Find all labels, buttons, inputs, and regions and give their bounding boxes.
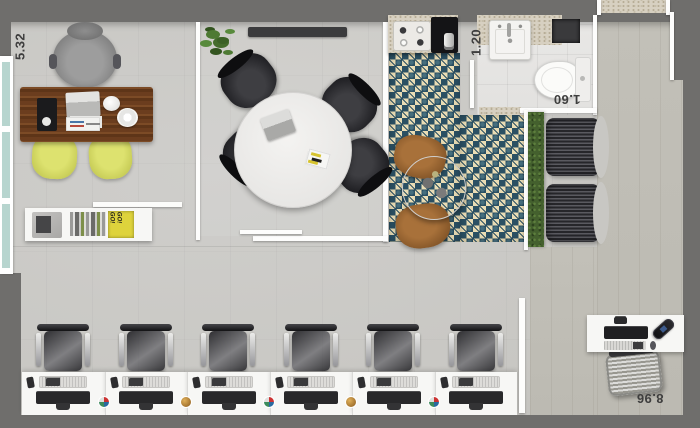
cafe-tile-floor	[460, 115, 527, 242]
desk-accessory	[98, 396, 110, 408]
chair-seat	[457, 331, 495, 371]
window-mullion	[0, 198, 13, 204]
lounge-bench	[546, 184, 600, 242]
printer	[32, 212, 62, 238]
task-chair	[283, 324, 339, 373]
chair-armrest	[168, 333, 173, 366]
monitor	[604, 326, 648, 339]
workstation	[105, 300, 188, 415]
laptop	[65, 91, 100, 118]
coffee-machine	[431, 17, 458, 53]
floor-seam	[10, 246, 390, 247]
documents	[66, 117, 100, 131]
meeting-papers	[305, 148, 330, 169]
workstation-desk	[270, 372, 353, 415]
desk-phone-dock	[37, 98, 57, 131]
desk-phone	[26, 376, 35, 388]
workstation-desk	[22, 372, 105, 415]
desk-phone	[110, 376, 119, 388]
keyboard-keys	[128, 377, 143, 386]
workstation-desk	[352, 372, 435, 415]
desk-phone	[357, 376, 366, 388]
dimension-label-bathroom: 1.60	[542, 93, 592, 106]
meeting-table	[234, 92, 352, 208]
chair-armrest	[449, 333, 454, 366]
partition-wall	[519, 298, 525, 413]
chair-seat	[374, 331, 412, 371]
monitor-stand	[387, 403, 401, 410]
dimension-label-kitchen: 1.20	[470, 15, 483, 71]
chair-armrest	[284, 333, 289, 366]
chair-seat	[127, 331, 165, 371]
chair-back	[367, 324, 419, 331]
monitor-stand	[304, 403, 318, 410]
workstation	[270, 300, 353, 415]
laptop	[260, 109, 296, 142]
desk-phone	[275, 376, 284, 388]
entry-threshold	[601, 0, 666, 13]
wall-left-lower	[0, 273, 21, 415]
chair-armrest	[498, 333, 503, 366]
chair-armrest	[201, 333, 206, 366]
executive-chair	[53, 30, 117, 88]
keyboard-keys	[211, 377, 226, 386]
bathroom-threshold	[479, 107, 521, 115]
wall-left-upper	[0, 22, 11, 58]
chair-seat	[44, 331, 82, 371]
wall-right	[683, 22, 700, 415]
window-mullion	[0, 56, 13, 62]
meeting-room-wall-right	[383, 22, 388, 242]
desk-phone	[440, 376, 449, 388]
chair-armrest	[366, 333, 371, 366]
chair-armrest	[250, 333, 255, 366]
chair-armrest	[333, 333, 338, 366]
book-text: GO! GO!	[108, 211, 121, 225]
monitor-stand	[139, 403, 153, 410]
mouse	[650, 341, 656, 350]
chair-armrest	[415, 333, 420, 366]
keyboard	[604, 341, 646, 350]
desk-accessory	[180, 396, 192, 408]
chair-back	[202, 324, 254, 331]
desk-accessory	[263, 396, 275, 408]
tv-credenza	[248, 27, 347, 37]
window-mullion	[0, 126, 13, 132]
wall-right-upper	[674, 0, 700, 80]
task-chair	[200, 324, 256, 373]
desk-phone	[192, 376, 201, 388]
window-left	[0, 56, 13, 274]
workstation	[22, 300, 105, 415]
reception-desk	[587, 315, 684, 352]
sink	[489, 20, 531, 60]
task-chair	[365, 324, 421, 373]
workstation	[187, 300, 270, 415]
cafe-table	[402, 156, 466, 220]
keyboard	[122, 376, 170, 388]
sideboard: GO! GO!	[25, 208, 152, 241]
window-glass	[2, 56, 10, 274]
meeting-room-sliding-door	[240, 230, 302, 234]
keyboard-keys	[376, 377, 391, 386]
bathroom-mirror-niche	[552, 19, 580, 43]
meeting-room-wall-bottom	[253, 236, 388, 241]
kitchen-counter	[388, 15, 458, 53]
desk-lamp	[103, 96, 120, 111]
workstation-desk	[187, 372, 270, 415]
keyboard	[39, 376, 87, 388]
workstation	[435, 300, 518, 415]
chair-seat	[209, 331, 247, 371]
yellow-books: GO! GO!	[108, 211, 134, 238]
cooktop	[393, 21, 431, 51]
dimension-label-left: 5.32	[14, 19, 27, 75]
chair-armrest	[36, 333, 41, 366]
chair-back	[120, 324, 172, 331]
reception-chair	[605, 349, 663, 396]
keyboard-keys	[45, 377, 60, 386]
chair-back	[450, 324, 502, 331]
monitor-stand	[222, 403, 236, 410]
entry-door-leaf	[670, 12, 674, 80]
dimension-label-bottom: 8.96	[624, 392, 676, 405]
workstation	[352, 300, 435, 415]
lounge-bench	[546, 118, 600, 176]
chair-back	[37, 324, 89, 331]
webcam	[614, 317, 627, 324]
keyboard-keys	[293, 377, 308, 386]
keyboard	[287, 376, 335, 388]
task-chair	[118, 324, 174, 373]
meeting-room-wall-left	[196, 22, 200, 240]
chair-armrest	[119, 333, 124, 366]
chair-seat	[292, 331, 330, 371]
wall-bottom	[0, 415, 700, 428]
office-floor-plan: GO! GO!	[0, 0, 700, 428]
book-stack	[70, 212, 106, 236]
workstation-desk	[435, 372, 518, 415]
keyboard-keys	[458, 377, 473, 386]
plant	[206, 30, 220, 39]
chair-armrest	[85, 333, 90, 366]
workstation-desk	[105, 372, 188, 415]
workstation-row	[22, 300, 517, 415]
window-mullion	[0, 268, 13, 274]
keyboard	[370, 376, 418, 388]
task-chair	[35, 324, 91, 373]
desk-accessory	[345, 396, 357, 408]
desk-phone	[651, 317, 676, 341]
keyboard	[452, 376, 500, 388]
wall-shelf	[93, 202, 182, 207]
bathroom-wall-right	[593, 15, 597, 115]
keyboard	[205, 376, 253, 388]
hedge-planter	[528, 112, 544, 247]
coffee-cup	[117, 108, 138, 127]
chair-back	[285, 324, 337, 331]
desk-accessory	[428, 396, 440, 408]
task-chair	[448, 324, 504, 373]
monitor-stand	[469, 403, 483, 410]
monitor-stand	[56, 403, 70, 410]
entry-door-post	[597, 0, 601, 15]
